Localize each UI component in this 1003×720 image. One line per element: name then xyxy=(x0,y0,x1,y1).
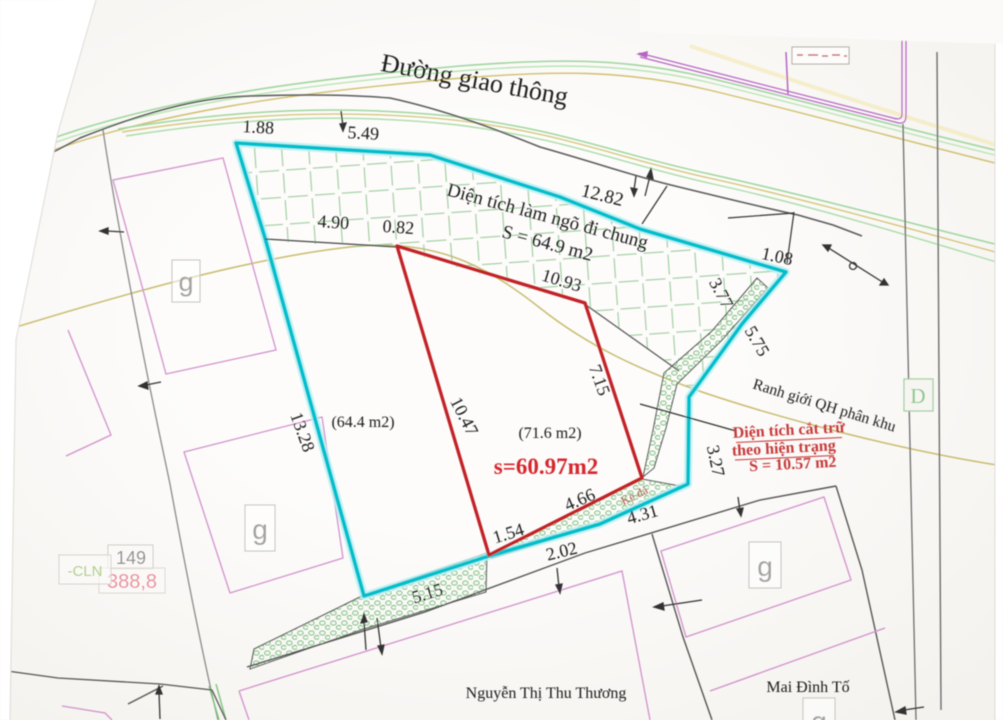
svg-text:g: g xyxy=(252,514,268,545)
svg-text:S = 10.57 m2: S = 10.57 m2 xyxy=(749,454,837,476)
svg-text:1.88: 1.88 xyxy=(242,116,275,138)
svg-text:g: g xyxy=(811,706,827,720)
svg-text:388,8: 388,8 xyxy=(107,571,157,593)
svg-text:5.75: 5.75 xyxy=(741,322,774,359)
svg-text:5.49: 5.49 xyxy=(347,122,380,144)
svg-text:s=60.97m2: s=60.97m2 xyxy=(494,454,598,479)
svg-text:0.82: 0.82 xyxy=(382,216,415,238)
svg-text:D: D xyxy=(910,384,925,408)
svg-text:4.90: 4.90 xyxy=(317,211,350,233)
svg-text:Nguyễn Thị Thu Thương: Nguyễn Thị Thu Thương xyxy=(466,685,627,702)
svg-text:(71.6 m2): (71.6 m2) xyxy=(518,425,581,442)
svg-text:g: g xyxy=(757,551,773,582)
svg-text:7.15: 7.15 xyxy=(585,362,615,398)
svg-text:-CLN: -CLN xyxy=(67,563,102,580)
svg-text:149: 149 xyxy=(116,548,146,568)
svg-text:(64.4 m2): (64.4 m2) xyxy=(331,414,394,431)
svg-text:g: g xyxy=(178,267,193,297)
svg-text:Mai Đình Tố: Mai Đình Tố xyxy=(766,679,849,696)
svg-text:3.27: 3.27 xyxy=(703,443,729,478)
